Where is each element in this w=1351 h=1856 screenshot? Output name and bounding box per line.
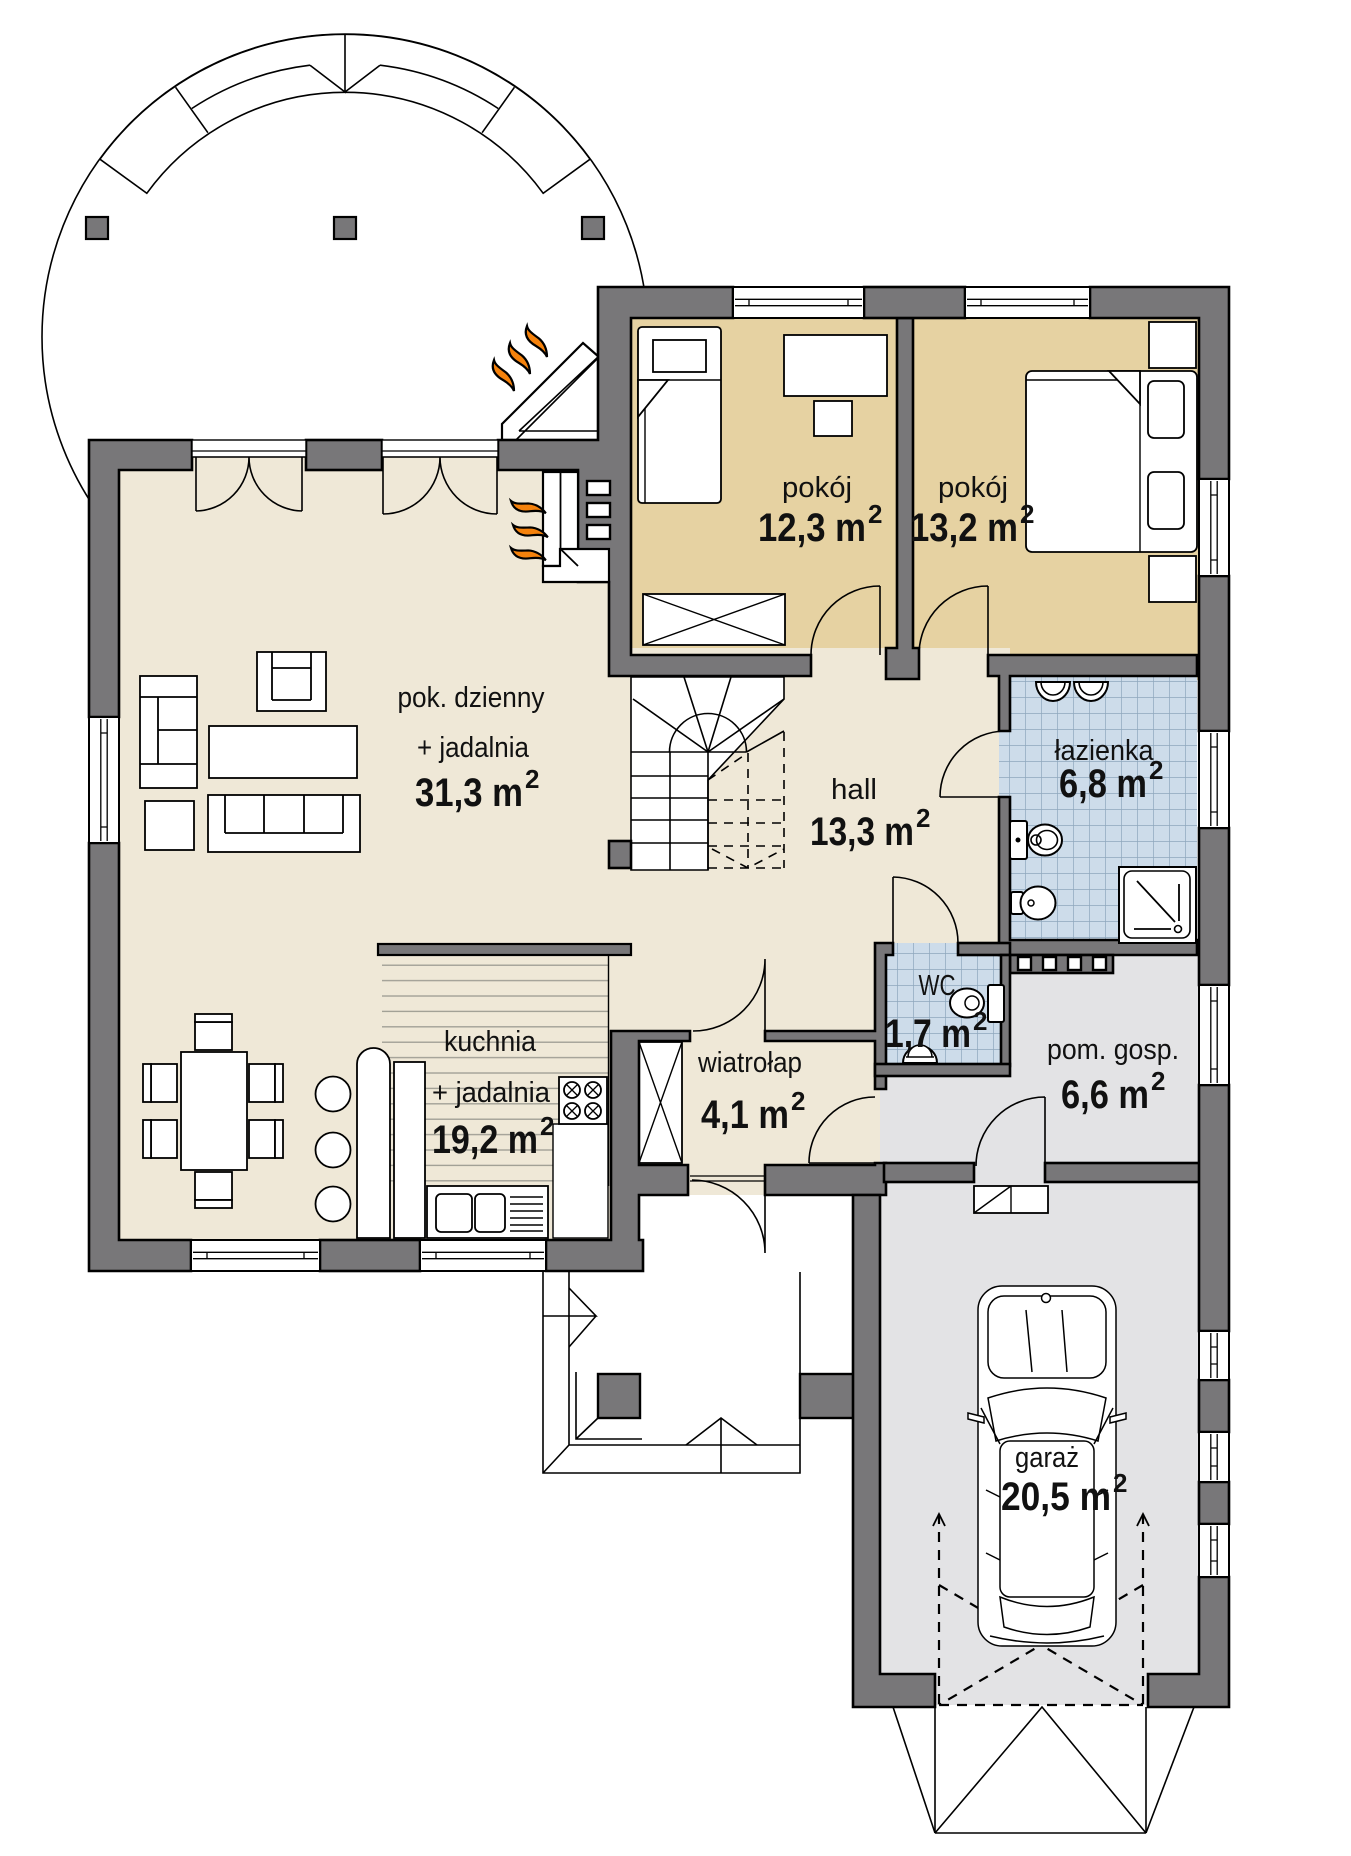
svg-text:2: 2 xyxy=(1020,499,1034,529)
svg-text:2: 2 xyxy=(1149,755,1163,785)
svg-text:2: 2 xyxy=(973,1006,987,1036)
svg-text:13,2 m: 13,2 m xyxy=(910,506,1018,550)
svg-text:2: 2 xyxy=(1151,1066,1165,1096)
svg-text:hall: hall xyxy=(831,774,877,806)
svg-text:kuchnia: kuchnia xyxy=(444,1026,537,1058)
svg-text:wiatrołap: wiatrołap xyxy=(697,1047,802,1079)
svg-text:garaż: garaż xyxy=(1015,1442,1079,1474)
svg-text:+ jadalnia: + jadalnia xyxy=(432,1077,551,1109)
svg-text:6,8 m: 6,8 m xyxy=(1059,762,1147,806)
svg-text:pok. dzienny: pok. dzienny xyxy=(398,682,545,714)
svg-text:2: 2 xyxy=(1113,1468,1127,1498)
svg-text:2: 2 xyxy=(868,499,882,529)
svg-text:pom. gosp.: pom. gosp. xyxy=(1047,1034,1179,1066)
svg-text:pokój: pokój xyxy=(782,472,852,504)
svg-text:13,3 m: 13,3 m xyxy=(810,810,914,854)
svg-text:1,7 m: 1,7 m xyxy=(885,1012,971,1056)
svg-text:4,1 m: 4,1 m xyxy=(701,1093,789,1137)
svg-text:12,3 m: 12,3 m xyxy=(758,506,866,550)
svg-text:2: 2 xyxy=(525,764,539,794)
svg-text:31,3 m: 31,3 m xyxy=(415,771,523,815)
svg-text:19,2 m: 19,2 m xyxy=(432,1118,538,1162)
svg-text:WC: WC xyxy=(919,970,956,1002)
svg-text:2: 2 xyxy=(540,1111,554,1141)
svg-text:2: 2 xyxy=(916,803,930,833)
svg-text:6,6 m: 6,6 m xyxy=(1061,1073,1149,1117)
svg-text:20,5 m: 20,5 m xyxy=(1001,1475,1111,1519)
svg-text:2: 2 xyxy=(791,1086,805,1116)
svg-text:pokój: pokój xyxy=(938,472,1008,504)
svg-text:+ jadalnia: + jadalnia xyxy=(417,732,530,764)
